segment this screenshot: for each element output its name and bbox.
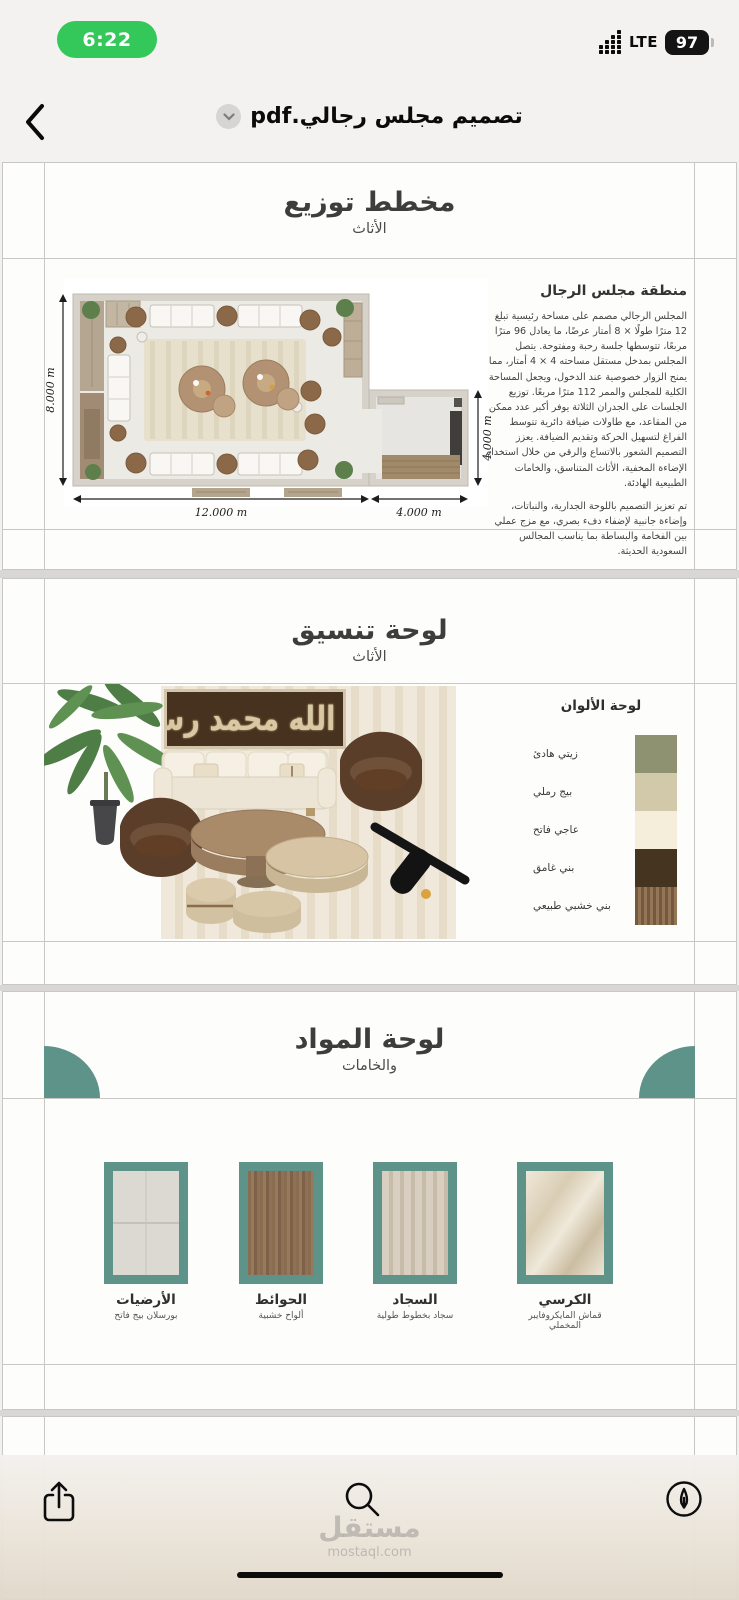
color-swatch-label: عاجي فاتح xyxy=(525,824,635,836)
dimension-width-label: 12.000 m xyxy=(195,506,247,519)
status-bar: 6:22 LTE 97 xyxy=(0,0,739,60)
markup-pencil-icon xyxy=(664,1479,704,1519)
color-swatch-label: بني خشبي طبيعي xyxy=(525,900,635,912)
material-card-chair: الكرسي قماش المايكروفايبر المخملي xyxy=(517,1162,613,1331)
watermark-domain: mostaql.com xyxy=(0,1546,739,1560)
iphone-pdf-viewer: 6:22 LTE 97 xyxy=(0,0,739,1600)
palette-row: بني غامق xyxy=(525,849,677,887)
dimension-height-label: 8.000 m xyxy=(44,367,57,412)
plan-paragraph-1: المجلس الرجالي مصمم على مساحة رئيسية تبل… xyxy=(483,309,687,491)
material-desc: قماش المايكروفايبر المخملي xyxy=(517,1311,613,1331)
page-footer-strip xyxy=(3,941,736,986)
bottom-toolbar: مستقل mostaql.com xyxy=(0,1455,739,1600)
material-desc: بورسلان بيج فاتح xyxy=(104,1311,188,1321)
mood-title-block: لوحة تنسيق الأثاث xyxy=(3,579,736,684)
palette-row: عاجي فاتح xyxy=(525,811,677,849)
material-frame xyxy=(104,1162,188,1284)
mood-content: لا إله إلا الله محمد رسول الله xyxy=(3,684,736,941)
title-dropdown-button[interactable] xyxy=(216,104,241,129)
page-subtitle: الأثاث xyxy=(3,221,736,237)
plan-content: 8.000 m 12.000 m 4.000 m 4.000 m منطقة م… xyxy=(3,259,736,529)
plan-description: منطقة مجلس الرجال المجلس الرجالي مصمم عل… xyxy=(481,259,693,529)
wood-panel-swatch xyxy=(248,1171,314,1275)
palette-row: زيتي هادئ xyxy=(525,735,677,773)
floor-plan-render: 8.000 m 12.000 m 4.000 m 4.000 m xyxy=(44,259,504,529)
material-card-floors: الأرضيات بورسلان بيج فاتح xyxy=(104,1162,188,1321)
pdf-page-floor-plan: مخطط توزيع الأثاث xyxy=(2,162,737,570)
page-footer-strip xyxy=(3,1364,736,1411)
color-swatch xyxy=(635,849,677,887)
material-frame xyxy=(517,1162,613,1284)
search-icon xyxy=(342,1479,382,1519)
page-title: لوحة المواد xyxy=(3,1024,736,1055)
page-footer-strip xyxy=(3,529,736,571)
material-frame xyxy=(239,1162,323,1284)
page-separator xyxy=(0,570,739,578)
document-title-group: تصميم مجلس رجالي.pdf xyxy=(0,104,739,129)
material-card-walls: الحوائط ألواح خشبية xyxy=(239,1162,323,1321)
dimension-entry-width-label: 4.000 m xyxy=(395,506,441,519)
striped-carpet-swatch xyxy=(382,1171,448,1275)
track-light xyxy=(375,827,465,899)
page-title: لوحة تنسيق xyxy=(3,615,736,646)
page-subtitle: الأثاث xyxy=(3,649,736,665)
color-swatch xyxy=(635,887,677,925)
palette-title: لوحة الألوان xyxy=(525,698,677,714)
color-swatch xyxy=(635,773,677,811)
material-desc: سجاد بخطوط طولية xyxy=(373,1311,457,1321)
color-swatch-label: زيتي هادئ xyxy=(525,748,635,760)
velvet-fabric-swatch xyxy=(526,1171,604,1275)
color-palette: لوحة الألوان زيتي هادئ بيج رملي عاجي فات… xyxy=(525,698,677,925)
color-swatch xyxy=(635,735,677,773)
barrel-chair-right xyxy=(340,732,422,811)
share-icon xyxy=(40,1479,78,1525)
search-button[interactable] xyxy=(342,1479,382,1523)
document-title[interactable]: تصميم مجلس رجالي.pdf xyxy=(250,104,523,129)
material-card-carpet: السجاد سجاد بخطوط طولية xyxy=(373,1162,457,1321)
color-swatch-label: بني غامق xyxy=(525,862,635,874)
pdf-page-materials: لوحة المواد والخامات الأرضيات بورسلان بي… xyxy=(2,991,737,1410)
material-frame xyxy=(373,1162,457,1284)
materials-title-block: لوحة المواد والخامات xyxy=(3,992,736,1099)
material-desc: ألواح خشبية xyxy=(239,1311,323,1321)
page-title: مخطط توزيع xyxy=(3,187,736,218)
plan-title-block: مخطط توزيع الأثاث xyxy=(3,163,736,259)
pdf-page-mood-board: لوحة تنسيق الأثاث لا إله إلا الله محمد ر… xyxy=(2,578,737,985)
material-name: الحوائط xyxy=(239,1292,323,1308)
home-indicator[interactable] xyxy=(237,1572,503,1578)
navigation-bar: تصميم مجلس رجالي.pdf xyxy=(0,60,739,162)
material-name: الأرضيات xyxy=(104,1292,188,1308)
status-indicators: LTE 97 xyxy=(598,29,709,55)
network-type-label: LTE xyxy=(629,33,658,51)
markup-button[interactable] xyxy=(664,1479,704,1523)
plan-section-title: منطقة مجلس الرجال xyxy=(483,283,687,299)
material-name: الكرسي xyxy=(517,1292,613,1308)
battery-indicator: 97 xyxy=(665,30,709,55)
page-subtitle: والخامات xyxy=(3,1058,736,1074)
material-name: السجاد xyxy=(373,1292,457,1308)
palette-row: بني خشبي طبيعي xyxy=(525,887,677,925)
porcelain-tile-swatch xyxy=(113,1171,179,1275)
materials-content: الأرضيات بورسلان بيج فاتح الحوائط ألواح … xyxy=(3,1099,736,1364)
active-call-time-pill[interactable]: 6:22 xyxy=(57,21,157,58)
color-swatch-label: بيج رملي xyxy=(525,786,635,798)
cellular-signal-icon xyxy=(598,30,622,54)
palette-row: بيج رملي xyxy=(525,773,677,811)
chevron-down-icon xyxy=(223,113,235,121)
barrel-chair-left xyxy=(120,798,202,877)
share-button[interactable] xyxy=(40,1479,78,1529)
color-swatch xyxy=(635,811,677,849)
